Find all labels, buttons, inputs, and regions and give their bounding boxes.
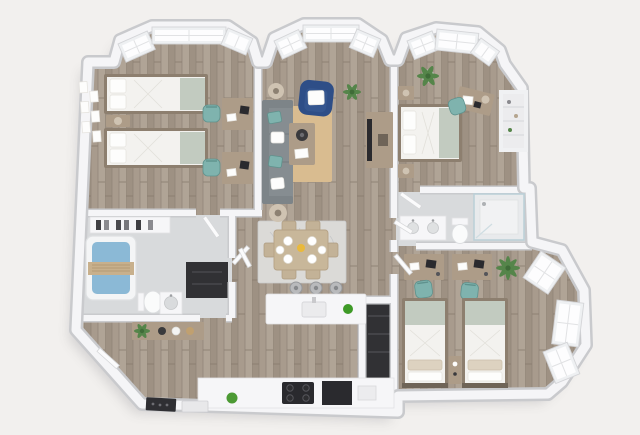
desk-3 <box>404 254 444 280</box>
twin-bed-1 <box>104 74 208 114</box>
yellow-pitcher <box>297 244 305 252</box>
dining-chair <box>264 243 275 257</box>
storage-shelf <box>90 217 170 233</box>
glass-shower <box>474 194 524 240</box>
bathroom-sink <box>160 292 182 314</box>
teal-desk-chair-3 <box>414 280 433 299</box>
teal-desk-chair-1 <box>203 105 220 122</box>
black-appliance <box>322 381 352 405</box>
navy-armchair <box>297 79 334 117</box>
nightstand-bottom <box>398 164 414 178</box>
green-apple-decor <box>343 304 353 314</box>
cooktop <box>282 382 314 404</box>
nightstand-top <box>398 86 414 100</box>
palm-plant <box>496 256 520 280</box>
laundry-nook <box>186 262 228 298</box>
bathtub <box>86 236 136 300</box>
dark-bowl <box>158 327 166 335</box>
towel-caddy <box>88 262 134 275</box>
hallway-entry <box>132 322 204 340</box>
kitchen-island <box>266 294 366 324</box>
toilet-right <box>452 218 468 244</box>
floor-plan-render <box>0 0 640 435</box>
desk-2 <box>222 152 253 184</box>
gray-sofa <box>262 100 293 204</box>
twin-bed-3 <box>402 298 448 388</box>
island-sink <box>302 302 326 317</box>
toilet-left <box>138 291 162 313</box>
bedroom2-closet <box>501 92 526 150</box>
floor-plan-svg <box>0 0 640 435</box>
woven-sphere <box>186 327 194 335</box>
green-decor-ball <box>227 393 238 404</box>
teal-desk-chair-2 <box>203 159 220 176</box>
kitchen-counter <box>198 378 394 408</box>
white-sphere <box>172 327 180 335</box>
desk-4 <box>452 254 492 280</box>
twin-bed-4 <box>462 298 508 388</box>
teal-desk-chair-4 <box>460 282 479 301</box>
nightstand-decor <box>449 356 462 384</box>
twin-bed-2 <box>104 128 208 168</box>
tv-console <box>366 112 393 168</box>
desk-1 <box>222 98 253 130</box>
tv <box>367 119 372 161</box>
dining-chair <box>327 243 338 257</box>
nightstand-with-lamp <box>106 115 130 127</box>
bar-stools <box>290 282 342 294</box>
coffee-table <box>289 123 315 165</box>
console-table <box>132 322 204 340</box>
